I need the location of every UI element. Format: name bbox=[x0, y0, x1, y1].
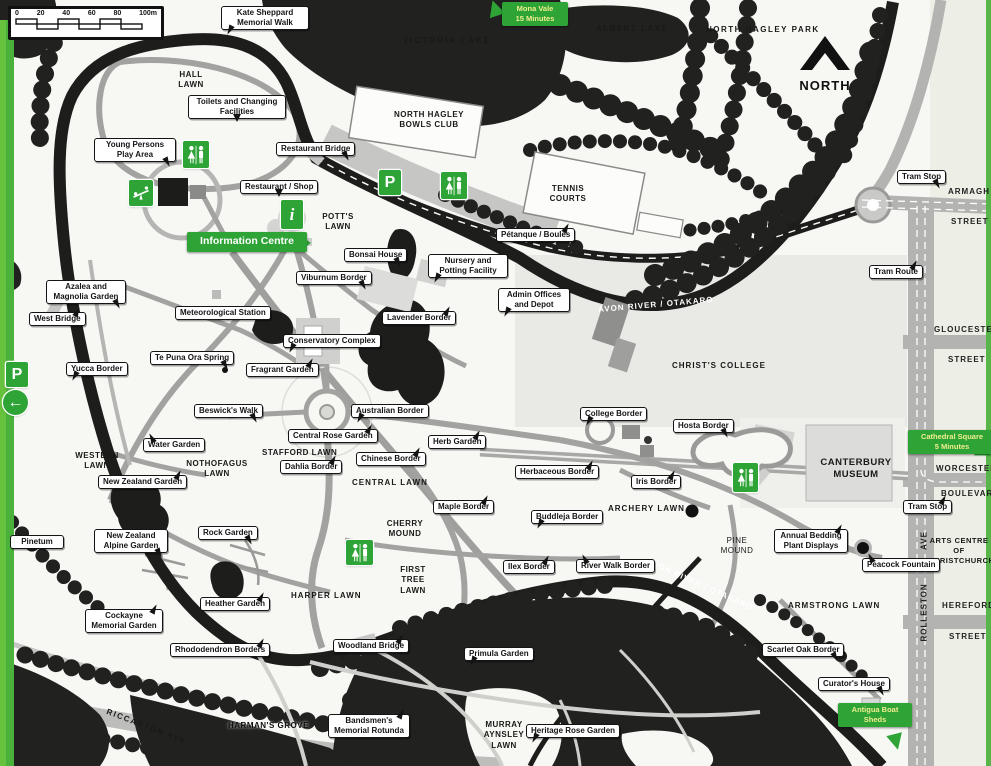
mona-vale-line2: 15 Minutes bbox=[506, 14, 564, 24]
street-hereford: HEREFORD bbox=[942, 601, 991, 610]
parking-icon: P bbox=[6, 362, 28, 387]
callout-heritage-rose-garden: Heritage Rose Garden bbox=[526, 724, 620, 738]
callout-scarlet-oak-border: Scarlet Oak Border bbox=[762, 643, 844, 657]
area-armstrong-lawn: ARMSTRONG LAWN bbox=[788, 601, 880, 611]
callout-azalea-magnolia-garden: Azalea and Magnolia Garden bbox=[46, 280, 126, 304]
information-icon: i bbox=[281, 200, 303, 229]
mona-vale-line1: Mona Vale bbox=[506, 4, 564, 14]
north-label: NORTH bbox=[796, 78, 854, 93]
scale-tick: 80 bbox=[113, 10, 121, 17]
scale-tick: 60 bbox=[88, 10, 96, 17]
callout-tram-stop: Tram Stop bbox=[897, 170, 946, 184]
callout-rhododendron-borders: Rhododendron Borders bbox=[170, 643, 270, 657]
area-north-hagley-bowls-club: NORTH HAGLEY BOWLS CLUB bbox=[394, 110, 464, 131]
callout-new-zealand-alpine-garden: New Zealand Alpine Garden bbox=[94, 529, 168, 553]
area-pine-mound: PINE MOUND bbox=[718, 536, 756, 557]
callout-fragrant-garden: Fragrant Garden bbox=[246, 363, 319, 377]
callout-dahlia-border: Dahlia Border bbox=[280, 460, 342, 474]
street-worcester: WORCESTER bbox=[936, 464, 991, 473]
parking-letter: P bbox=[12, 366, 23, 384]
area-central-lawn: CENTRAL LAWN bbox=[352, 478, 428, 488]
north-arrow-icon bbox=[797, 34, 853, 72]
cathedral-square-sign: Cathedral Square 5 Minutes bbox=[908, 430, 991, 454]
callout-kate-sheppard-memorial-walk: Kate Sheppard Memorial Walk bbox=[221, 6, 309, 30]
callout-curators-house: Curator's House bbox=[818, 677, 890, 691]
antigua-line1: Antigua Boat bbox=[842, 705, 908, 715]
callout-pinetum: Pinetum bbox=[10, 535, 64, 549]
botanic-gardens-map: 0 20 40 60 80 100m NORTH Mona Vale 15 Mi… bbox=[0, 0, 991, 766]
callout-river-walk-border: River Walk Border bbox=[576, 559, 655, 573]
callout-buddleja-border: Buddleja Border bbox=[531, 510, 603, 524]
callout-maple-border: Maple Border bbox=[433, 500, 494, 514]
street-hereford-street: STREET bbox=[949, 632, 987, 641]
area-tennis-courts: TENNIS COURTS bbox=[546, 184, 590, 205]
toilets-icon bbox=[183, 141, 209, 168]
left-arrow-glyph: ← bbox=[8, 394, 24, 412]
callout-beswicks-walk: Beswick's Walk bbox=[194, 404, 263, 418]
street-gloucester-street: STREET bbox=[948, 355, 986, 364]
callout-bandsmens-memorial-rotunda: Bandsmen's Memorial Rotunda bbox=[328, 714, 410, 738]
north-compass: NORTH bbox=[796, 34, 854, 93]
scale-tick: 40 bbox=[62, 10, 70, 17]
street-rolleston: ROLLESTON bbox=[920, 588, 929, 642]
area-cherry-mound: CHERRY MOUND bbox=[384, 519, 426, 540]
playground-icon bbox=[129, 180, 153, 206]
parking-letter: P bbox=[385, 174, 396, 192]
callout-restaurant-bridge: Restaurant Bridge bbox=[276, 142, 355, 156]
cathedral-square-line1: Cathedral Square bbox=[912, 432, 991, 442]
callout-restaurant-shop: Restaurant / Shop bbox=[240, 180, 318, 194]
callout-tram-stop: Tram Stop bbox=[903, 500, 952, 514]
callout-australian-border: Australian Border bbox=[351, 404, 429, 418]
area-nothofagus-lawn: NOTHOFAGUS LAWN bbox=[186, 459, 248, 480]
scale-bar-ticks: 0 20 40 60 80 100m bbox=[15, 10, 157, 17]
street-rolleston-ave: AVE bbox=[920, 521, 929, 561]
information-centre-sign: Information Centre bbox=[187, 232, 307, 252]
cathedral-square-line2: 5 Minutes bbox=[912, 442, 991, 452]
callout-cockayne-memorial-garden: Cockayne Memorial Garden bbox=[85, 609, 163, 633]
street-armagh-street: STREET bbox=[951, 217, 989, 226]
area-murray-aynsley-lawn: MURRAY AYNSLEY LAWN bbox=[476, 720, 532, 751]
callout-woodland-bridge: Woodland Bridge bbox=[333, 639, 409, 653]
callout-herbaceous-border: Herbaceous Border bbox=[515, 465, 599, 479]
callout-central-rose-garden: Central Rose Garden bbox=[288, 429, 378, 443]
callout-te-puna-ora-spring: Te Puna Ora Spring bbox=[150, 351, 234, 365]
antigua-boat-sheds-sign: Antigua Boat Sheds bbox=[838, 703, 912, 727]
callout-toilets-changing-facilities: Toilets and Changing Facilities bbox=[188, 95, 286, 119]
area-archery-lawn: ARCHERY LAWN bbox=[608, 504, 685, 514]
street-gloucester: GLOUCESTER bbox=[934, 325, 991, 334]
mona-vale-sign: Mona Vale 15 Minutes bbox=[502, 2, 568, 26]
callout-heather-garden: Heather Garden bbox=[200, 597, 270, 611]
street-armagh: ARMAGH bbox=[948, 187, 990, 196]
parking-direction-arrow-icon: ← bbox=[3, 390, 28, 415]
callout-annual-bedding-plant-displays: Annual Bedding Plant Displays bbox=[774, 529, 848, 553]
callout-bonsai-house: Bonsai House bbox=[344, 248, 407, 262]
area-first-tree-lawn: FIRST TREE LAWN bbox=[388, 565, 438, 596]
area-hall-lawn: HALL LAWN bbox=[170, 70, 212, 91]
callout-peacock-fountain: Peacock Fountain bbox=[862, 558, 940, 572]
callout-viburnum-border: Viburnum Border bbox=[296, 271, 372, 285]
callout-hosta-border: Hosta Border bbox=[673, 419, 734, 433]
callout-tram-route: Tram Route bbox=[869, 265, 923, 279]
callout-young-persons-play-area: Young Persons Play Area bbox=[94, 138, 176, 162]
callout-ilex-border: Ilex Border bbox=[503, 560, 555, 574]
toilets-icon bbox=[441, 172, 467, 199]
callout-meteorological-station: Meteorological Station bbox=[175, 306, 271, 320]
scale-tick: 0 bbox=[15, 10, 19, 17]
callout-rock-garden: Rock Garden bbox=[198, 526, 258, 540]
toilets-icon bbox=[346, 540, 373, 565]
scale-tick: 20 bbox=[37, 10, 45, 17]
callout-west-bridge: West Bridge bbox=[29, 312, 86, 326]
callout-petanque-boules: Pétanque / Boules bbox=[496, 228, 575, 242]
scale-bar-segments bbox=[15, 18, 143, 30]
callout-admin-offices-depot: Admin Offices and Depot bbox=[498, 288, 570, 312]
parking-icon: P bbox=[379, 170, 401, 195]
callout-chinese-border: Chinese Border bbox=[356, 452, 426, 466]
area-albert-lake: ALBERT LAKE bbox=[596, 24, 669, 34]
scale-tick: 100m bbox=[139, 10, 157, 17]
area-victoria-lake: VICTORIA LAKE bbox=[403, 36, 491, 46]
information-glyph: i bbox=[290, 205, 295, 225]
area-potts-lawn: POTT'S LAWN bbox=[318, 212, 358, 233]
area-canterbury-museum: CANTERBURY MUSEUM bbox=[818, 457, 894, 482]
callout-herb-garden: Herb Garden bbox=[428, 435, 486, 449]
callout-yucca-border: Yucca Border bbox=[66, 362, 128, 376]
callout-nursery-potting-facility: Nursery and Potting Facility bbox=[428, 254, 508, 278]
scale-bar: 0 20 40 60 80 100m bbox=[8, 6, 164, 40]
callout-primula-garden: Primula Garden bbox=[464, 647, 534, 661]
antigua-line2: Sheds bbox=[842, 715, 908, 725]
area-western-lawn: WESTERN LAWN bbox=[74, 451, 120, 472]
callout-college-border: College Border bbox=[580, 407, 647, 421]
toilets-icon bbox=[733, 463, 758, 492]
callout-iris-border: Iris Border bbox=[631, 475, 681, 489]
callout-conservatory-complex: Conservatory Complex bbox=[283, 334, 381, 348]
information-centre-label: Information Centre bbox=[200, 235, 294, 247]
callout-water-garden: Water Garden bbox=[143, 438, 205, 452]
callout-new-zealand-garden: New Zealand Garden bbox=[98, 475, 187, 489]
callout-lavender-border: Lavender Border bbox=[382, 311, 456, 325]
area-stafford-lawn: STAFFORD LAWN bbox=[262, 448, 337, 458]
area-harper-lawn: HARPER LAWN bbox=[291, 591, 362, 601]
area-harmans-grove: HARMAN'S GROVE bbox=[228, 721, 309, 731]
area-christs-college: CHRIST'S COLLEGE bbox=[672, 361, 766, 371]
